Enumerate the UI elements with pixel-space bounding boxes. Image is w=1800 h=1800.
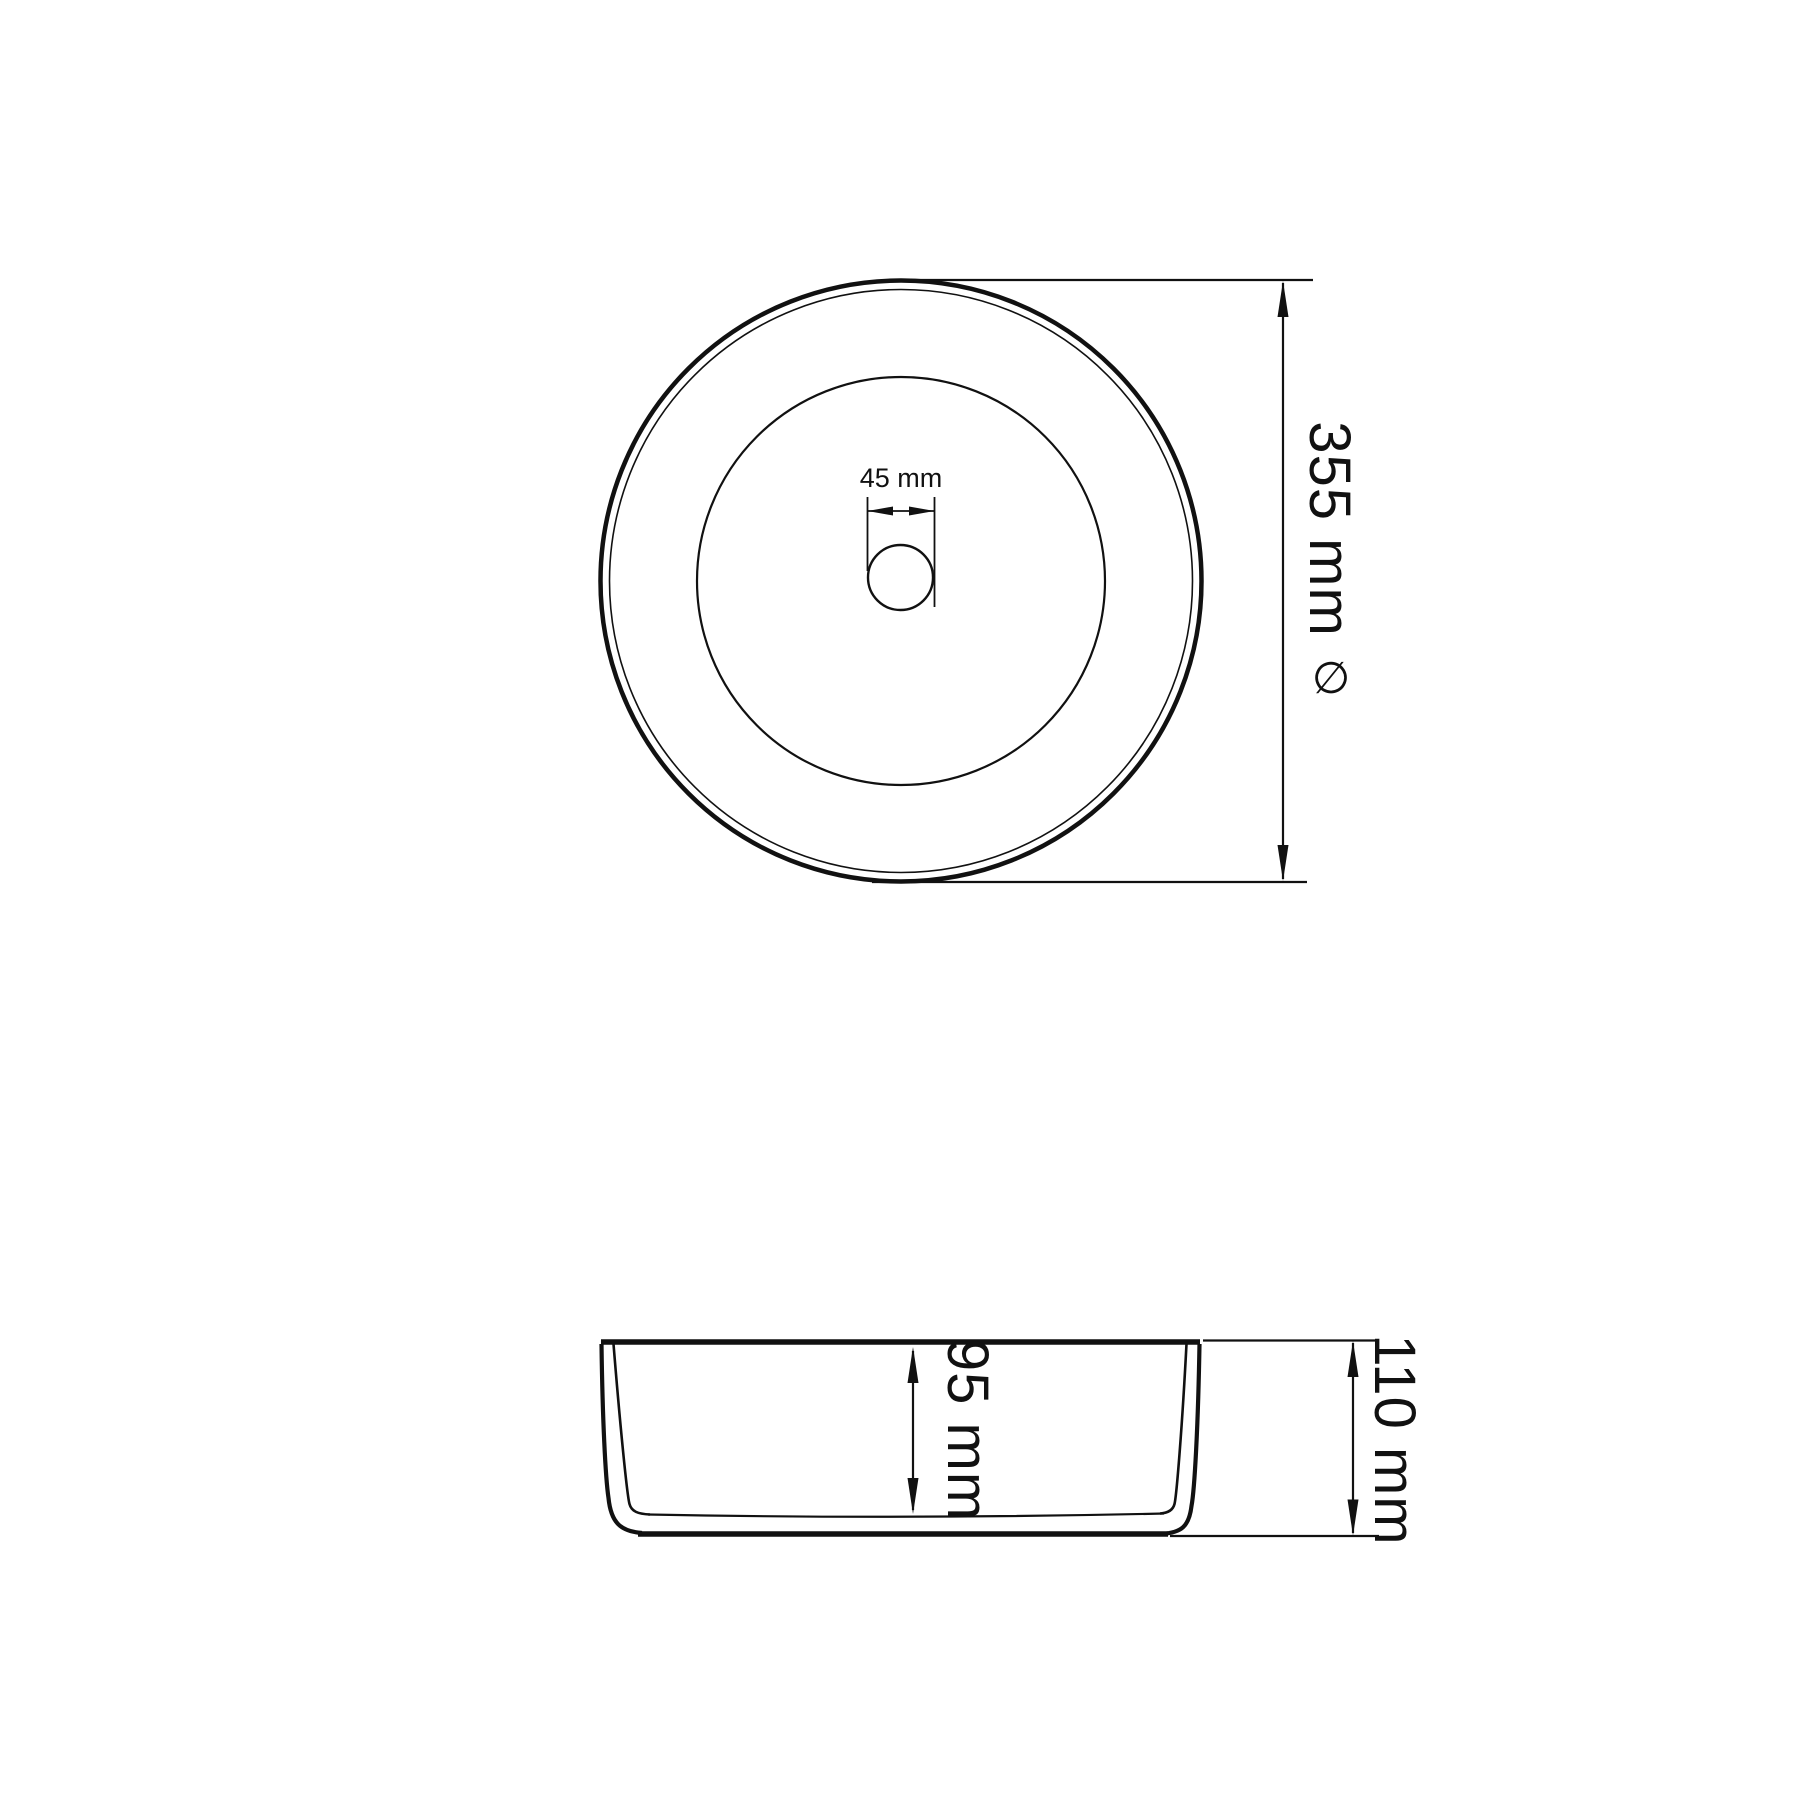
dimension-inner-depth-95mm: 95 mm <box>908 1339 1001 1521</box>
side-inner-wall-right <box>1160 1344 1187 1514</box>
side-inner-wall-left <box>614 1344 651 1515</box>
technical-drawing-page: 45 mm 355 mm ∅ <box>0 0 1800 1800</box>
basin-outer-edge-circle <box>601 281 1202 882</box>
drain-hole-circle <box>868 545 933 610</box>
arrowhead-right-icon <box>909 507 935 516</box>
side-inner-floor <box>648 1514 1164 1517</box>
arrowhead-up-icon <box>1348 1341 1359 1377</box>
arrowhead-up-icon <box>1278 281 1289 317</box>
arrowhead-up-icon <box>908 1347 919 1383</box>
arrowhead-left-icon <box>868 507 894 516</box>
arrowhead-down-icon <box>1278 845 1289 881</box>
diameter-symbol: ∅ <box>1312 654 1350 703</box>
arrowhead-down-icon <box>908 1478 919 1514</box>
dimension-overall-height-110mm: 110 mm <box>1170 1334 1427 1545</box>
dimension-drain-45mm: 45 mm <box>860 463 943 607</box>
overall-height-dimension-label: 110 mm <box>1362 1334 1427 1545</box>
arrowhead-down-icon <box>1348 1500 1359 1536</box>
drawing-canvas: 45 mm 355 mm ∅ <box>0 0 1800 1800</box>
diameter-dimension-label: 355 mm <box>1297 421 1362 637</box>
top-view: 45 mm 355 mm ∅ <box>601 280 1363 882</box>
side-view: 95 mm 110 mm <box>601 1334 1427 1545</box>
basin-bowl-circle <box>697 377 1105 785</box>
drain-dimension-label: 45 mm <box>860 463 943 493</box>
inner-depth-dimension-label: 95 mm <box>935 1339 1000 1521</box>
